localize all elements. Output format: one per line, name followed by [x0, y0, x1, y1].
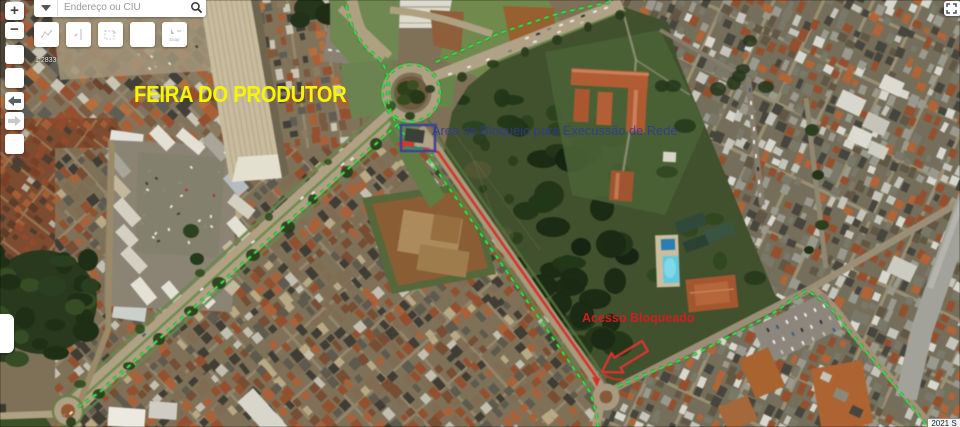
svg-text:Snap: Snap — [169, 37, 180, 42]
